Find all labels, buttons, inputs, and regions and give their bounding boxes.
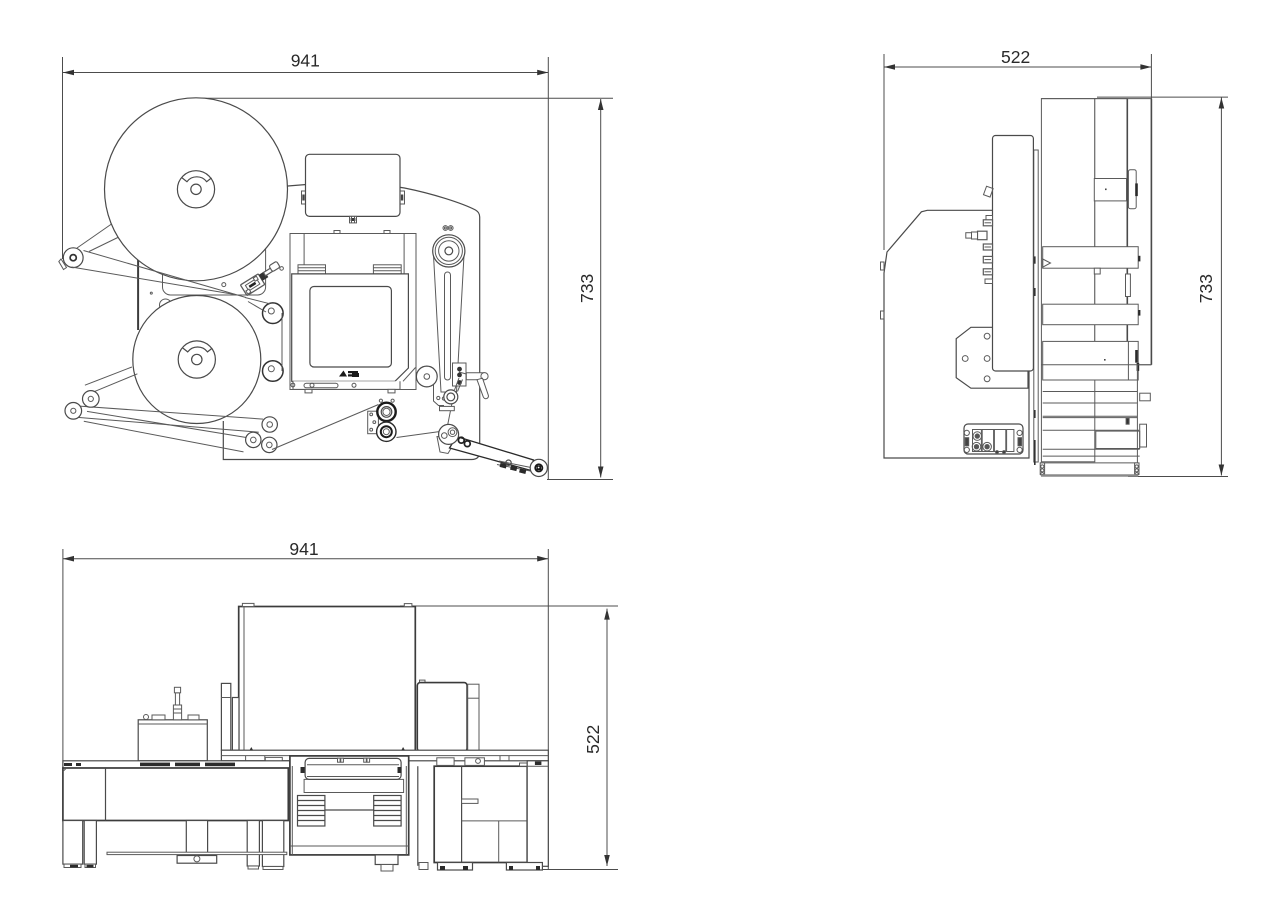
svg-text:733: 733 <box>577 274 597 303</box>
svg-text:941: 941 <box>289 539 318 559</box>
svg-text:941: 941 <box>291 51 320 71</box>
svg-text:733: 733 <box>1196 274 1216 303</box>
svg-text:522: 522 <box>1001 47 1030 67</box>
svg-text:522: 522 <box>583 725 603 754</box>
